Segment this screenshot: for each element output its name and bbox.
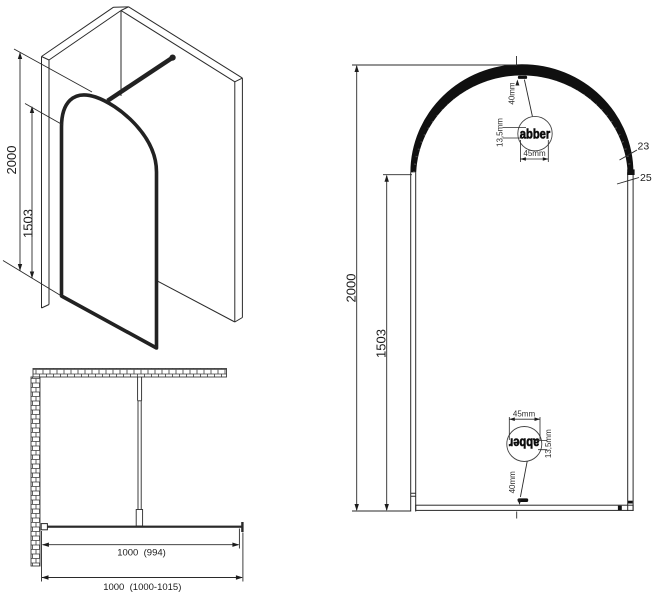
svg-text:13,5mm: 13,5mm: [496, 118, 505, 147]
svg-text:1503: 1503: [374, 329, 389, 358]
svg-text:1000 (1000-1015): 1000 (1000-1015): [103, 582, 181, 593]
svg-text:2000: 2000: [343, 274, 358, 303]
svg-text:1503: 1503: [20, 209, 35, 238]
svg-text:40mm: 40mm: [508, 471, 517, 494]
svg-text:45mm: 45mm: [513, 410, 536, 419]
svg-text:abber: abber: [520, 127, 551, 142]
svg-text:2000: 2000: [4, 146, 19, 175]
svg-text:40mm: 40mm: [508, 82, 517, 105]
svg-text:13,5mm: 13,5mm: [544, 429, 553, 458]
svg-text:45mm: 45mm: [523, 149, 546, 158]
svg-text:25: 25: [640, 172, 652, 184]
svg-text:abber: abber: [508, 435, 539, 450]
svg-text:1000 (994): 1000 (994): [117, 548, 166, 559]
svg-text:23: 23: [638, 141, 650, 153]
